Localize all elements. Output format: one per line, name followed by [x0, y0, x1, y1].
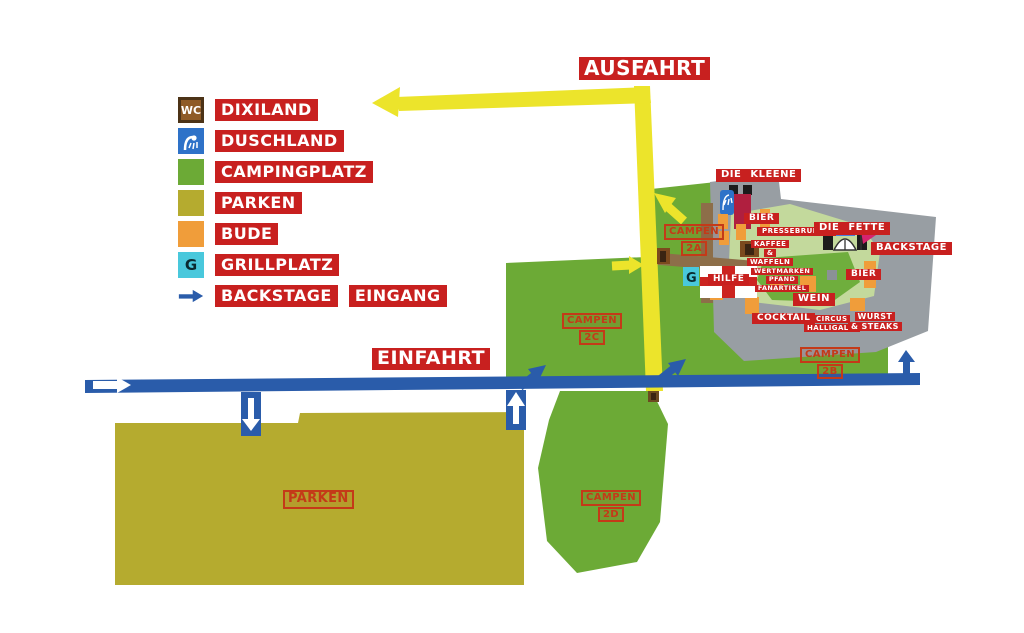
legend-item-bude: BUDE	[178, 221, 447, 247]
festival-map: G WC DIXILAND DUSCHLAND CAMPINGP	[0, 0, 1024, 633]
label-line: 2D	[598, 507, 624, 523]
shower-icon	[178, 128, 204, 154]
hilfe-label: HILFE	[708, 274, 749, 285]
legend-label: BUDE	[215, 223, 278, 244]
label-line: FANARTIKEL	[755, 285, 809, 292]
legend-label: BACKSTAGE	[215, 285, 338, 306]
die-fette-label: DIE FETTE	[814, 222, 890, 235]
legend-item-duschland: DUSCHLAND	[178, 128, 447, 154]
legend-item-dixiland: WC DIXILAND	[178, 97, 447, 123]
legend-item-backstage-eingang: BACKSTAGE EINGANG	[178, 283, 447, 309]
legend: WC DIXILAND DUSCHLAND CAMPINGPLATZ PARKE…	[178, 97, 447, 309]
legend-label: GRILLPLATZ	[215, 254, 339, 275]
bude-stand	[736, 224, 746, 240]
wc-icon	[648, 391, 659, 402]
label-line: CAMPEN	[562, 313, 622, 329]
campen-2b-label: CAMPEN 2B	[800, 347, 860, 379]
white-arrow-up-shaft	[513, 404, 519, 424]
einfahrt-road	[85, 373, 920, 393]
legend-label: CAMPINGPLATZ	[215, 161, 373, 182]
grill-icon: G	[178, 252, 204, 278]
parken-swatch	[178, 190, 204, 216]
label-line: &	[764, 249, 777, 257]
white-arrow-down-shaft	[248, 398, 254, 420]
label-line: 2B	[817, 364, 842, 380]
speaker-icon	[743, 185, 752, 195]
ausfahrt-label: AUSFAHRT	[579, 57, 710, 80]
yellow-arrow-right-shaft	[612, 265, 631, 266]
label-line: WAFFELN	[747, 258, 793, 266]
label-line: & STEAKS	[848, 322, 902, 331]
label-line: CAMPEN	[664, 224, 724, 240]
campen-2a-label: CAMPEN 2A	[664, 224, 724, 256]
bier-right-label: BIER	[846, 269, 881, 280]
label-line: WERTMARKEN	[751, 268, 813, 275]
backstage-label: BACKSTAGE	[871, 242, 952, 255]
label-line: PFAND	[766, 276, 798, 283]
legend-label: DIXILAND	[215, 99, 318, 120]
bude-stand	[850, 298, 865, 311]
kaffee-waffeln-label: KAFFEE & WAFFELN	[747, 240, 793, 266]
foh-square	[827, 270, 837, 280]
label-line: KAFFEE	[751, 240, 789, 248]
parken-label: PARKEN	[283, 490, 354, 509]
bude-swatch	[178, 221, 204, 247]
label-line: CAMPEN	[800, 347, 860, 363]
label-line: CAMPEN	[581, 490, 641, 506]
bude-stand	[745, 297, 759, 314]
legend-item-campingplatz: CAMPINGPLATZ	[178, 159, 447, 185]
wc-icon: WC	[178, 97, 204, 123]
legend-item-grillplatz: G GRILLPLATZ	[178, 252, 447, 278]
label-line: PARKEN	[283, 490, 354, 509]
bier-left-label: BIER	[744, 213, 779, 224]
white-arrow-right-shaft	[93, 381, 117, 389]
legend-label: EINGANG	[349, 285, 447, 306]
campen-2d-area	[538, 391, 668, 573]
label-line: 2A	[681, 241, 707, 257]
camping-swatch	[178, 159, 204, 185]
label-line: CIRCUS	[813, 315, 850, 323]
grill-letter: G	[686, 271, 697, 286]
backstage-arrow-shaft	[903, 360, 910, 376]
label-line: WURST	[855, 312, 896, 321]
backstage-arrow-icon	[898, 350, 915, 362]
legend-item-parken: PARKEN	[178, 190, 447, 216]
wein-label: WEIN	[793, 293, 835, 306]
legend-label: PARKEN	[215, 192, 302, 213]
wertmarken-label: WERTMARKEN PFAND FANARTIKEL	[751, 268, 813, 292]
label-line: 2C	[579, 330, 604, 346]
blue-arrow-icon	[178, 283, 204, 309]
wurst-steaks-label: WURST & STEAKS	[848, 312, 902, 331]
die-kleene-label: DIE KLEENE	[716, 169, 801, 182]
campen-2d-label: CAMPEN 2D	[581, 490, 641, 522]
campen-2c-label: CAMPEN 2C	[562, 313, 622, 345]
einfahrt-label: EINFAHRT	[372, 348, 490, 370]
legend-label: DUSCHLAND	[215, 130, 344, 151]
